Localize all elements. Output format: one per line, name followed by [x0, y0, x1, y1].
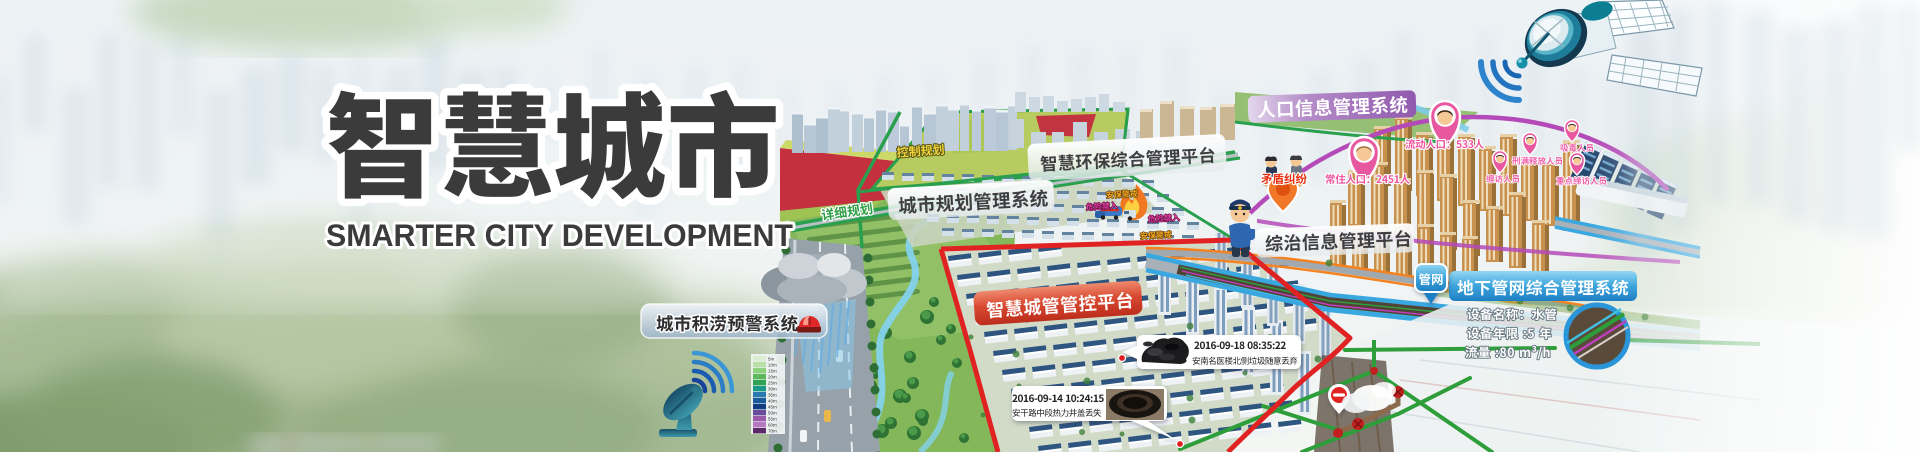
svg-text:60m: 60m — [768, 423, 777, 428]
svg-text:30m: 30m — [768, 387, 777, 392]
svg-text:10m: 10m — [768, 363, 777, 368]
svg-text:55m: 55m — [768, 417, 777, 422]
svg-text:35m: 35m — [768, 393, 777, 398]
svg-text:70m: 70m — [768, 429, 777, 434]
svg-text:SMARTER CITY DEVELOPMENT: SMARTER CITY DEVELOPMENT — [326, 217, 793, 253]
svg-text:50m: 50m — [768, 411, 777, 416]
svg-text:45m: 45m — [768, 405, 777, 410]
svg-text:15m: 15m — [768, 369, 777, 374]
svg-text:25m: 25m — [768, 381, 777, 386]
svg-text:5m: 5m — [768, 357, 775, 362]
svg-text:40m: 40m — [768, 399, 777, 404]
svg-text:20m: 20m — [768, 375, 777, 380]
